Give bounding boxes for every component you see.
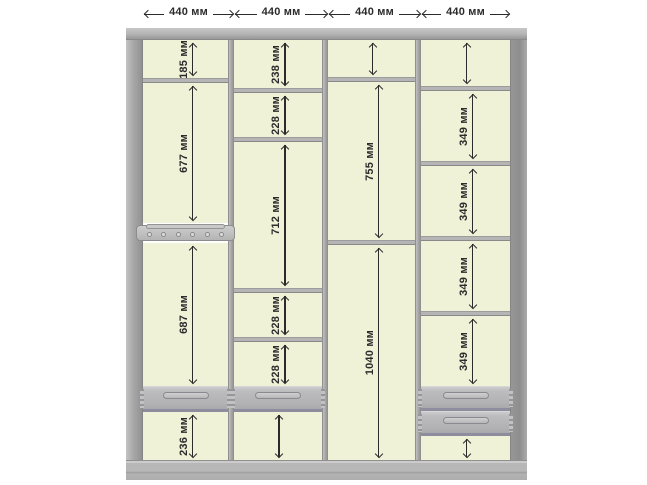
dimension-arrow-icon (378, 248, 379, 457)
dimension-arrow-right-icon (490, 14, 509, 15)
top-width-dimension: 440 мм (234, 2, 328, 24)
dimension-label: 677 мм (178, 134, 190, 173)
dimension-arrow-icon (472, 94, 473, 158)
wardrobe-carcass: 185 мм677 мм687 мм236 мм238 мм228 мм712 … (126, 28, 527, 480)
dimension-arrow-icon (278, 415, 279, 457)
compartment: 712 мм (234, 142, 322, 288)
dimension-label: 228 мм (270, 96, 282, 135)
vertical-dimension (276, 415, 279, 457)
compartment (421, 40, 510, 86)
rail-hole-icon (161, 232, 166, 237)
dimension-arrow-icon (284, 43, 285, 85)
vertical-dimension: 349 мм (458, 244, 473, 308)
drawer-handle (443, 392, 489, 399)
drawer (421, 411, 510, 436)
dimension-arrow-icon (372, 43, 373, 74)
drawer-rail-icon (321, 389, 325, 408)
rail-hole-icon (176, 232, 181, 237)
vertical-dimension: 755 мм (364, 85, 379, 237)
dimension-arrow-icon (466, 439, 467, 457)
drawer-rail-icon (140, 389, 144, 408)
rail-hole-icon (190, 232, 195, 237)
wardrobe-dimension-diagram: 440 мм440 мм440 мм440 мм 185 мм677 мм687… (0, 0, 647, 485)
compartment: 228 мм (234, 342, 322, 386)
dimension-arrow-icon (472, 244, 473, 308)
vertical-dimension (464, 43, 467, 83)
dimension-label: 440 мм (350, 6, 399, 21)
drawer-rail-icon (509, 389, 513, 407)
dimension-arrow-icon (466, 43, 467, 83)
dimension-arrow-icon (472, 169, 473, 233)
compartment: 238 мм (234, 40, 322, 88)
vertical-dimension (370, 43, 373, 74)
dimension-label: 440 мм (164, 6, 213, 21)
vertical-dimension: 236 мм (178, 415, 193, 457)
dimension-arrow-right-icon (399, 14, 420, 15)
vertical-dimension: 1040 мм (364, 248, 379, 457)
vertical-dimension: 712 мм (270, 145, 285, 285)
top-width-dimension: 440 мм (421, 2, 510, 24)
dimension-label: 228 мм (270, 296, 282, 335)
hanging-rail (136, 223, 235, 243)
compartment: 349 мм (421, 166, 510, 236)
dimension-arrow-left-icon (144, 14, 164, 15)
wardrobe-column-3: 755 мм1040 мм (328, 40, 415, 460)
dimension-arrow-left-icon (422, 14, 441, 15)
dimension-label: 349 мм (458, 257, 470, 296)
vertical-dimension: 687 мм (178, 246, 193, 383)
dimension-arrow-icon (284, 296, 285, 334)
drawer (421, 386, 510, 411)
drawer-handle (443, 417, 489, 424)
vertical-dimension: 228 мм (270, 345, 285, 383)
compartment: 349 мм (421, 241, 510, 311)
top-width-dimension: 440 мм (328, 2, 421, 24)
wardrobe-body: 185 мм677 мм687 мм236 мм238 мм228 мм712 … (126, 40, 527, 460)
compartment: 228 мм (234, 93, 322, 137)
drawer (234, 386, 322, 412)
top-width-dimension: 440 мм (143, 2, 234, 24)
drawer (143, 386, 228, 412)
drawer-rail-icon (231, 389, 235, 408)
dimension-arrow-icon (284, 345, 285, 383)
dimension-arrow-icon (284, 96, 285, 134)
rail-bar (136, 225, 235, 241)
drawer-rail-icon (418, 389, 422, 407)
compartment: 755 мм (328, 82, 415, 240)
rail-hole-icon (205, 232, 210, 237)
compartment (328, 40, 415, 77)
compartment: 236 мм (143, 412, 228, 460)
vertical-dimension: 185 мм (178, 43, 193, 75)
dimension-arrow-left-icon (329, 14, 350, 15)
dimension-arrow-icon (192, 86, 193, 220)
dimension-label: 687 мм (178, 295, 190, 334)
wardrobe-columns: 185 мм677 мм687 мм236 мм238 мм228 мм712 … (143, 40, 510, 460)
dimension-label: 349 мм (458, 107, 470, 146)
drawer-handle (255, 392, 301, 399)
dimension-label: 712 мм (270, 196, 282, 235)
compartment: 228 мм (234, 293, 322, 337)
compartment (421, 436, 510, 460)
wardrobe-column-2: 238 мм228 мм712 мм228 мм228 мм (234, 40, 322, 460)
wardrobe-plinth (126, 460, 527, 480)
dimension-label: 228 мм (270, 345, 282, 384)
dimension-label: 440 мм (257, 6, 306, 21)
compartment (234, 412, 322, 460)
dimension-arrow-icon (378, 85, 379, 237)
drawer-handle (163, 392, 209, 399)
rail-hole-icon (147, 232, 152, 237)
dimension-arrow-icon (472, 319, 473, 383)
wardrobe-column-4: 349 мм349 мм349 мм349 мм (421, 40, 510, 460)
dimension-arrow-left-icon (235, 14, 257, 15)
vertical-dimension: 677 мм (178, 86, 193, 220)
vertical-dimension: 349 мм (458, 94, 473, 158)
wardrobe-top-panel (126, 28, 527, 40)
drawer-rail-icon (509, 414, 513, 432)
compartment: 349 мм (421, 316, 510, 386)
dimension-arrow-icon (192, 415, 193, 457)
top-width-dimensions: 440 мм440 мм440 мм440 мм (143, 2, 510, 24)
dimension-label: 1040 мм (364, 330, 376, 375)
dimension-arrow-right-icon (305, 14, 327, 15)
vertical-dimension: 228 мм (270, 296, 285, 334)
dimension-arrow-icon (192, 246, 193, 383)
vertical-dimension (464, 439, 467, 457)
dimension-label: 236 мм (178, 417, 190, 456)
compartment: 185 мм (143, 40, 228, 78)
dimension-label: 349 мм (458, 182, 470, 221)
vertical-dimension: 349 мм (458, 319, 473, 383)
compartment: 1040 мм (328, 245, 415, 460)
vertical-dimension: 228 мм (270, 96, 285, 134)
dimension-arrow-icon (192, 43, 193, 75)
vertical-dimension: 238 мм (270, 43, 285, 85)
compartment: 349 мм (421, 91, 510, 161)
dimension-label: 440 мм (441, 6, 490, 21)
dimension-label: 755 мм (364, 142, 376, 181)
dimension-label: 238 мм (270, 45, 282, 84)
vertical-dimension: 349 мм (458, 169, 473, 233)
compartment: 677 мм (143, 83, 228, 223)
dimension-arrow-right-icon (213, 14, 233, 15)
dimension-arrow-icon (284, 145, 285, 285)
wardrobe-column-1: 185 мм677 мм687 мм236 мм (143, 40, 228, 460)
drawer-rail-icon (418, 414, 422, 432)
rail-hole-icon (219, 232, 224, 237)
compartment: 687 мм (143, 243, 228, 386)
dimension-label: 349 мм (458, 332, 470, 371)
